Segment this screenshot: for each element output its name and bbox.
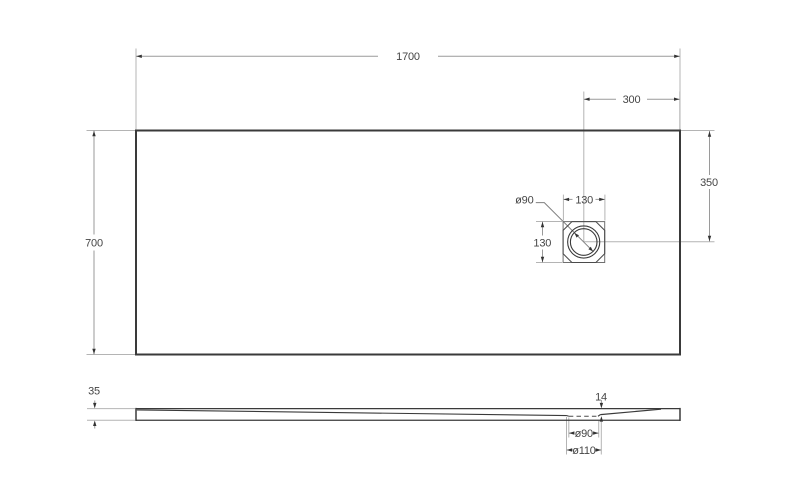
- svg-text:ø110: ø110: [572, 445, 596, 457]
- svg-text:35: 35: [88, 385, 100, 397]
- svg-text:130: 130: [533, 238, 551, 250]
- svg-text:130: 130: [575, 194, 593, 206]
- svg-text:300: 300: [623, 94, 641, 106]
- svg-text:14: 14: [595, 391, 607, 403]
- svg-text:ø90: ø90: [575, 428, 593, 440]
- svg-text:1700: 1700: [396, 51, 420, 63]
- svg-text:350: 350: [700, 177, 718, 189]
- svg-text:700: 700: [85, 237, 103, 249]
- svg-text:ø90: ø90: [515, 194, 533, 206]
